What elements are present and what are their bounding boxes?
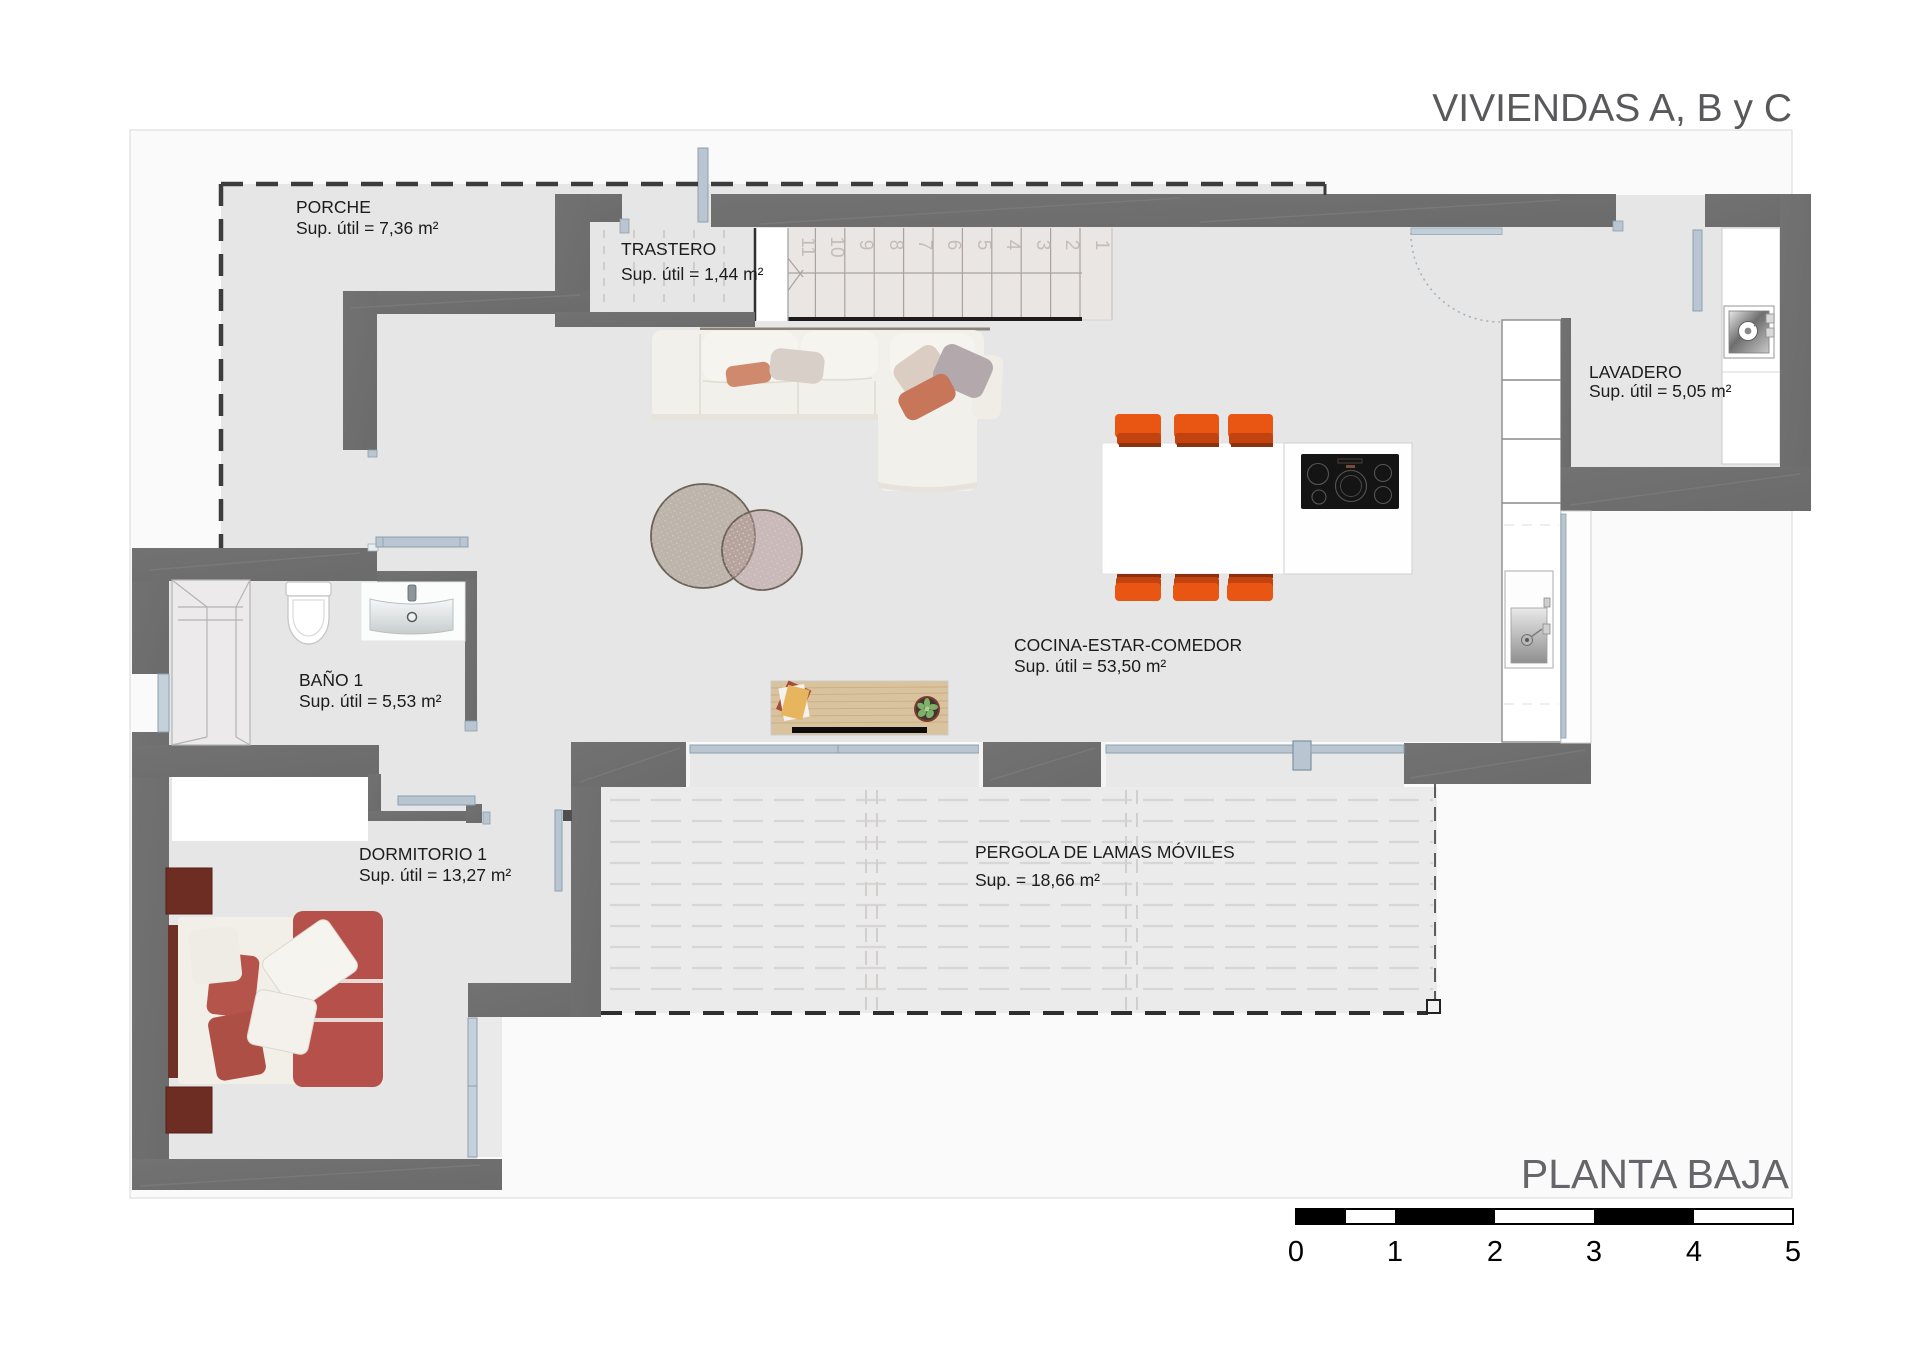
svg-text:8: 8 bbox=[885, 240, 906, 251]
svg-text:VIVIENDAS A, B y C: VIVIENDAS A, B y C bbox=[1432, 87, 1792, 130]
svg-text:Sup. útil = 13,27 m²: Sup. útil = 13,27 m² bbox=[359, 865, 511, 885]
svg-text:9: 9 bbox=[855, 240, 876, 251]
svg-text:5: 5 bbox=[1785, 1236, 1801, 1268]
svg-text:3: 3 bbox=[1586, 1236, 1602, 1268]
svg-text:COCINA-ESTAR-COMEDOR: COCINA-ESTAR-COMEDOR bbox=[1014, 635, 1242, 655]
svg-text:6: 6 bbox=[943, 240, 964, 251]
svg-text:Sup. útil = 7,36 m²: Sup. útil = 7,36 m² bbox=[296, 218, 439, 238]
svg-text:Sup. útil = 5,05 m²: Sup. útil = 5,05 m² bbox=[1589, 381, 1732, 401]
svg-text:PLANTA BAJA: PLANTA BAJA bbox=[1521, 1151, 1790, 1197]
svg-text:BAÑO 1: BAÑO 1 bbox=[299, 669, 363, 690]
svg-text:DORMITORIO 1: DORMITORIO 1 bbox=[359, 844, 487, 864]
svg-text:11: 11 bbox=[797, 237, 818, 257]
svg-text:7: 7 bbox=[914, 240, 935, 251]
svg-text:10: 10 bbox=[826, 236, 847, 257]
svg-text:3: 3 bbox=[1032, 240, 1053, 251]
svg-text:1: 1 bbox=[1091, 240, 1112, 251]
svg-text:0: 0 bbox=[1288, 1236, 1304, 1268]
svg-text:Sup. = 18,66 m²: Sup. = 18,66 m² bbox=[975, 870, 1100, 890]
svg-text:1: 1 bbox=[1387, 1236, 1403, 1268]
svg-text:2: 2 bbox=[1061, 240, 1082, 251]
svg-text:2: 2 bbox=[1487, 1236, 1503, 1268]
svg-text:PORCHE: PORCHE bbox=[296, 197, 371, 217]
svg-text:Sup. útil = 53,50 m²: Sup. útil = 53,50 m² bbox=[1014, 656, 1166, 676]
svg-text:Sup. útil = 5,53 m²: Sup. útil = 5,53 m² bbox=[299, 691, 442, 711]
svg-text:4: 4 bbox=[1686, 1236, 1702, 1268]
svg-text:LAVADERO: LAVADERO bbox=[1589, 362, 1682, 382]
svg-text:TRASTERO: TRASTERO bbox=[621, 239, 716, 259]
svg-text:Sup. útil = 1,44 m²: Sup. útil = 1,44 m² bbox=[621, 264, 764, 284]
svg-text:4: 4 bbox=[1002, 240, 1023, 251]
svg-text:5: 5 bbox=[973, 240, 994, 251]
svg-text:PERGOLA DE LAMAS MÓVILES: PERGOLA DE LAMAS MÓVILES bbox=[975, 841, 1235, 862]
